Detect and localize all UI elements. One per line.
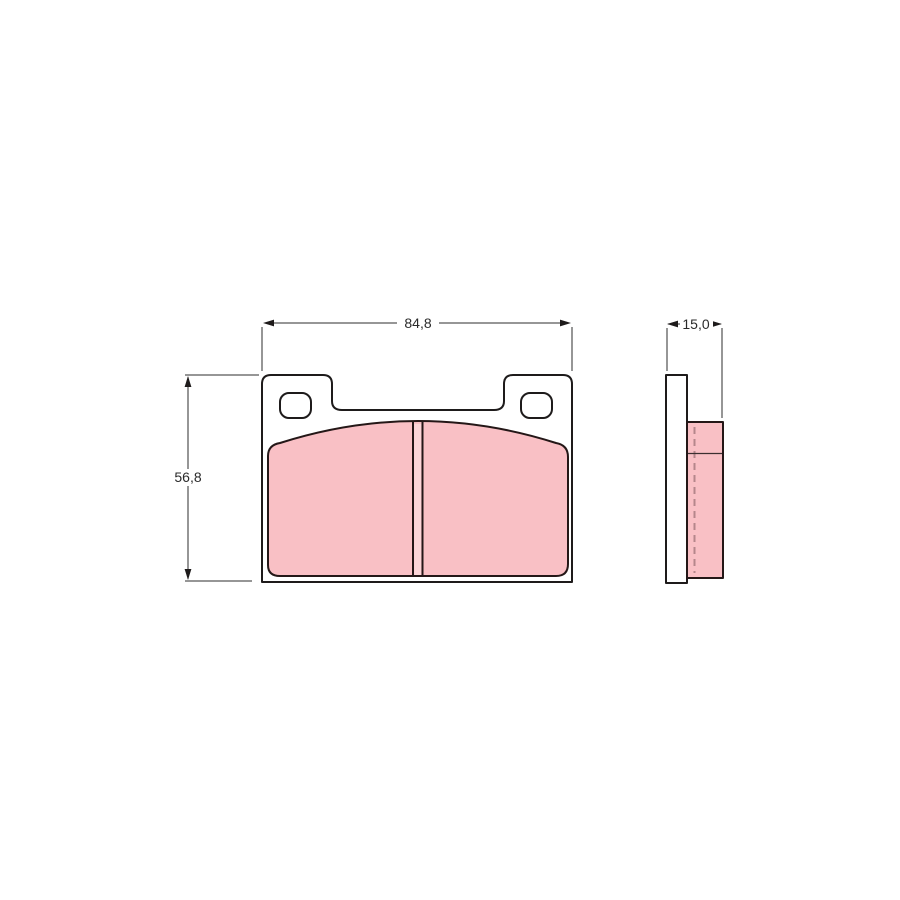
dimension-height: 56,8 (165, 375, 259, 581)
mounting-hole-right (521, 393, 552, 418)
brake-pad-technical-drawing: 84,8 56,8 15,0 (0, 0, 900, 900)
front-view (262, 375, 572, 582)
arrowhead-down (185, 569, 192, 580)
arrowhead-left (263, 320, 274, 327)
friction-material-side (687, 422, 723, 578)
mounting-hole-left (280, 393, 311, 418)
arrowhead-left (667, 321, 678, 328)
dimension-width: 84,8 (262, 315, 572, 371)
width-dimension-label: 84,8 (404, 315, 431, 331)
center-slot-fill (414, 424, 421, 575)
arrowhead-right (560, 320, 571, 327)
backing-plate-side (666, 375, 687, 583)
side-view (666, 375, 723, 583)
drawing-canvas: 84,8 56,8 15,0 (0, 0, 900, 900)
arrowhead-up (185, 376, 192, 387)
thickness-dimension-label: 15,0 (682, 316, 709, 332)
height-dimension-label: 56,8 (174, 469, 201, 485)
